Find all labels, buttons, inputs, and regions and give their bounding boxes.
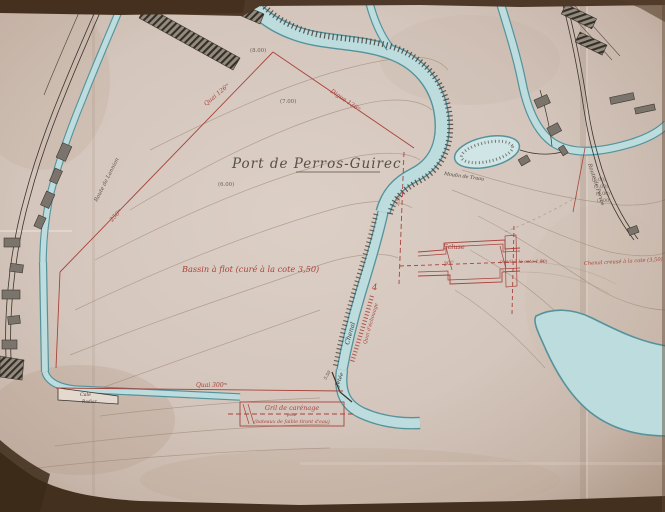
building (4, 238, 20, 247)
dim-250b: 2.50 (395, 195, 402, 207)
label-gril-2: pour (287, 413, 298, 418)
label-seuil: (seuil à la cote 1,50) (500, 258, 548, 265)
contour-r5: (5.00) (594, 183, 608, 190)
building (2, 340, 17, 349)
contour-7: (7.00) (280, 98, 296, 105)
dim-4: 4 (371, 283, 377, 293)
label-gril-1: Gril de carénage (265, 404, 319, 412)
label-cale: Cale (80, 392, 91, 398)
label-ecluse: Écluse (442, 242, 465, 251)
contour-r4: (4.00) (596, 190, 610, 197)
label-radier: Radier (81, 400, 98, 405)
contour-6: (6.00) (218, 181, 234, 188)
hatched-building (0, 356, 24, 380)
building (2, 290, 20, 299)
map-canvas: Port de Perros-Guirec Bassin à flot (cur… (0, 0, 665, 512)
building (10, 263, 24, 273)
contour-r6: (6.00) (592, 176, 606, 183)
contour-r3: (3.00) (597, 197, 611, 204)
paper-background (0, 0, 665, 512)
label-basin: Bassin à flot (curé à la cote 3,50) (181, 264, 319, 274)
dim-quai300: Quai 300ᵐ (196, 382, 228, 389)
label-gril-3: (bateaux de faible tirant d'eau) (254, 418, 330, 425)
scanned-map-photo: Port de Perros-Guirec Bassin à flot (cur… (0, 0, 665, 512)
map-title: Port de Perros-Guirec (231, 156, 402, 172)
contour-8: (8.00) (250, 47, 266, 54)
building (8, 315, 21, 324)
